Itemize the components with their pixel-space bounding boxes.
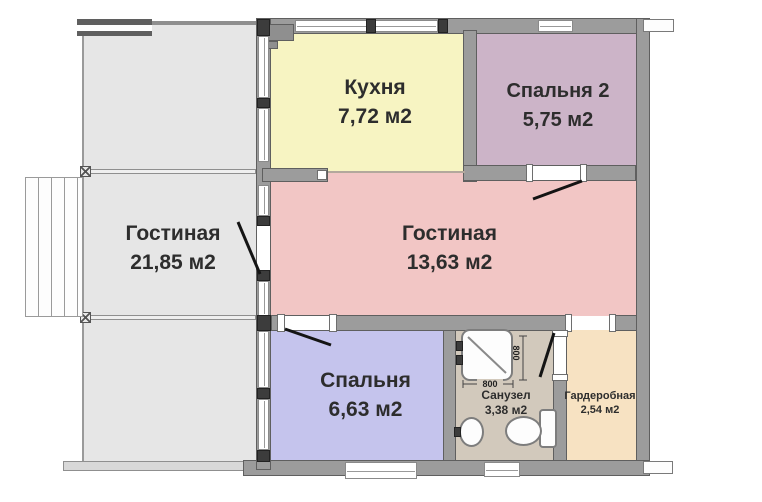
roof-overhang	[643, 19, 674, 32]
kitchen-area: 7,72 м2	[285, 102, 465, 131]
wall-marker	[257, 450, 270, 462]
veranda-window	[77, 19, 152, 36]
bedroom-label: Спальня 6,63 м2	[283, 366, 448, 424]
wall-marker	[257, 98, 270, 108]
door-jamb	[552, 374, 568, 381]
bedroom-name: Спальня	[283, 366, 448, 395]
wardrobe-label: Гардеробная 2,54 м2	[556, 389, 644, 417]
bedroom-area: 6,63 м2	[283, 395, 448, 424]
window-mullion	[366, 19, 376, 33]
entrance-steps	[25, 177, 83, 317]
bathroom-area: 3,38 м2	[456, 403, 556, 418]
window-veranda-wall	[258, 331, 269, 388]
window-bedroom	[345, 462, 417, 479]
sink-icon	[459, 417, 484, 447]
bathroom-name: Санузел	[456, 388, 556, 403]
living-name: Гостиная	[357, 219, 542, 248]
living-label: Гостиная 13,63 м2	[357, 219, 542, 277]
veranda-divider	[88, 315, 256, 320]
veranda-name: Гостиная	[87, 219, 259, 248]
veranda-top-edge	[150, 21, 258, 25]
floor-plan: Кухня 7,72 м2 Спальня 2 5,75 м2 Гостиная…	[0, 0, 762, 502]
kitchen-label: Кухня 7,72 м2	[285, 73, 465, 131]
door-jamb	[277, 314, 285, 332]
door-bathroom	[554, 334, 566, 376]
window-bathroom	[484, 462, 520, 477]
bedroom2-label: Спальня 2 5,75 м2	[473, 77, 643, 135]
window-veranda-wall	[258, 399, 269, 450]
bedroom2-area: 5,75 м2	[473, 106, 643, 135]
door-jamb	[609, 314, 616, 332]
door-jamb	[552, 330, 568, 337]
sink-tap-icon	[454, 427, 461, 437]
roof-overhang	[643, 461, 673, 474]
bedroom2-name: Спальня 2	[473, 77, 643, 106]
wall-marker	[257, 388, 270, 399]
kitchen-name: Кухня	[285, 73, 465, 102]
door-jamb	[580, 164, 587, 182]
shower-faucet-icon	[456, 355, 463, 365]
bathroom-label: Санузел 3,38 м2	[456, 388, 556, 418]
window-veranda-wall	[258, 36, 269, 98]
veranda-divider	[88, 169, 256, 174]
door-jamb	[329, 314, 337, 332]
window-veranda-wall	[258, 185, 269, 216]
shower-depth-dim: 800	[511, 340, 521, 366]
wardrobe-name: Гардеробная	[556, 389, 644, 403]
kitchen-living-boundary	[328, 171, 465, 173]
shower-width-dim: 800	[477, 379, 503, 389]
shower-icon	[461, 329, 513, 381]
window-veranda-wall	[258, 281, 269, 316]
wall-marker	[257, 19, 270, 36]
door-bedroom	[284, 316, 330, 330]
door-wardrobe	[570, 316, 611, 330]
wall-bottom	[243, 460, 650, 476]
veranda-area: 21,85 м2	[87, 248, 259, 277]
toilet-bowl-icon	[505, 416, 542, 446]
living-area: 13,63 м2	[357, 248, 542, 277]
wall-marker	[257, 315, 271, 331]
wall-stub-cap	[317, 170, 327, 180]
door-jamb	[526, 164, 533, 182]
door-bedroom2	[531, 166, 581, 180]
veranda-bottom-band	[63, 461, 258, 471]
window-mullion	[438, 19, 448, 33]
beam-marker-icon	[80, 166, 91, 177]
window-veranda-wall	[258, 108, 269, 162]
wardrobe-area: 2,54 м2	[556, 403, 644, 417]
shower-faucet-icon	[456, 341, 463, 351]
veranda-label: Гостиная 21,85 м2	[87, 219, 259, 277]
window-bedroom2	[538, 20, 573, 32]
